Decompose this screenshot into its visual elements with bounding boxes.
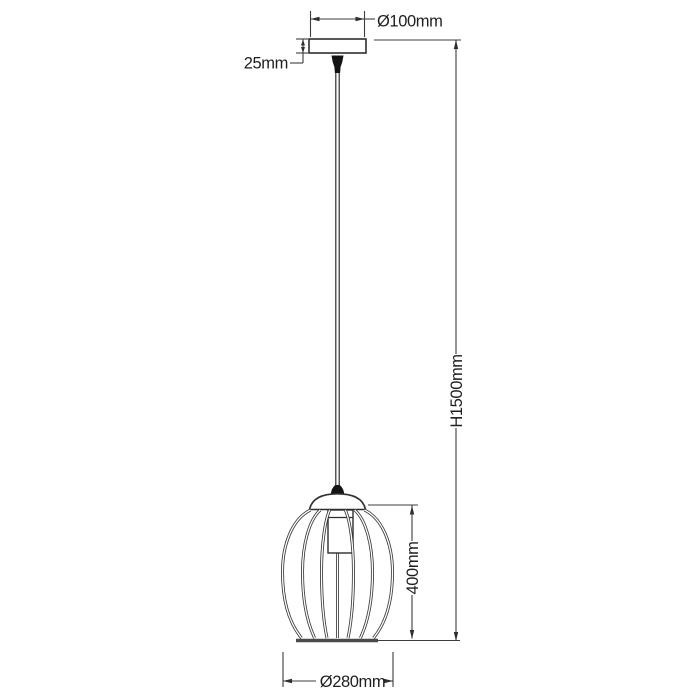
suspension-cord [331, 56, 344, 506]
shade-dome-cap [310, 494, 366, 510]
arrowhead [384, 679, 393, 683]
shade-diameter-label: Ø280mm [320, 673, 385, 691]
pendant-lamp-dimension-diagram: Ø100mm 25mm H1500mm 400mm Ø [0, 0, 700, 700]
arrowhead [283, 679, 292, 683]
cage-rib-core [303, 510, 321, 638]
technical-drawing: Ø100mm 25mm H1500mm 400mm Ø [0, 0, 700, 700]
cage-shade [283, 494, 393, 641]
arrowhead [301, 40, 305, 46]
cage-rib [355, 510, 373, 638]
overall-height-label: H1500mm [448, 354, 466, 427]
dim-shade-height: 400mm [368, 505, 422, 639]
arrowhead [410, 506, 414, 515]
arrowhead [454, 40, 458, 49]
arrowhead [311, 17, 320, 21]
dim-canopy-height: 25mm [244, 39, 308, 73]
dim-shade-diameter: Ø280mm [283, 652, 393, 691]
cord-grip-top [332, 56, 344, 74]
cage-rib-core [355, 510, 373, 638]
arrowhead [410, 630, 414, 639]
ceiling-canopy [309, 39, 366, 53]
dim-canopy-diameter: Ø100mm [311, 11, 443, 37]
canopy-body [309, 39, 366, 53]
canopy-height-label: 25mm [244, 55, 288, 73]
arrowhead [301, 47, 305, 53]
canopy-diameter-label: Ø100mm [377, 13, 442, 31]
arrowhead [454, 632, 458, 641]
shade-height-label: 400mm [404, 541, 422, 594]
arrowhead [356, 17, 365, 21]
cage-rib [303, 510, 321, 638]
